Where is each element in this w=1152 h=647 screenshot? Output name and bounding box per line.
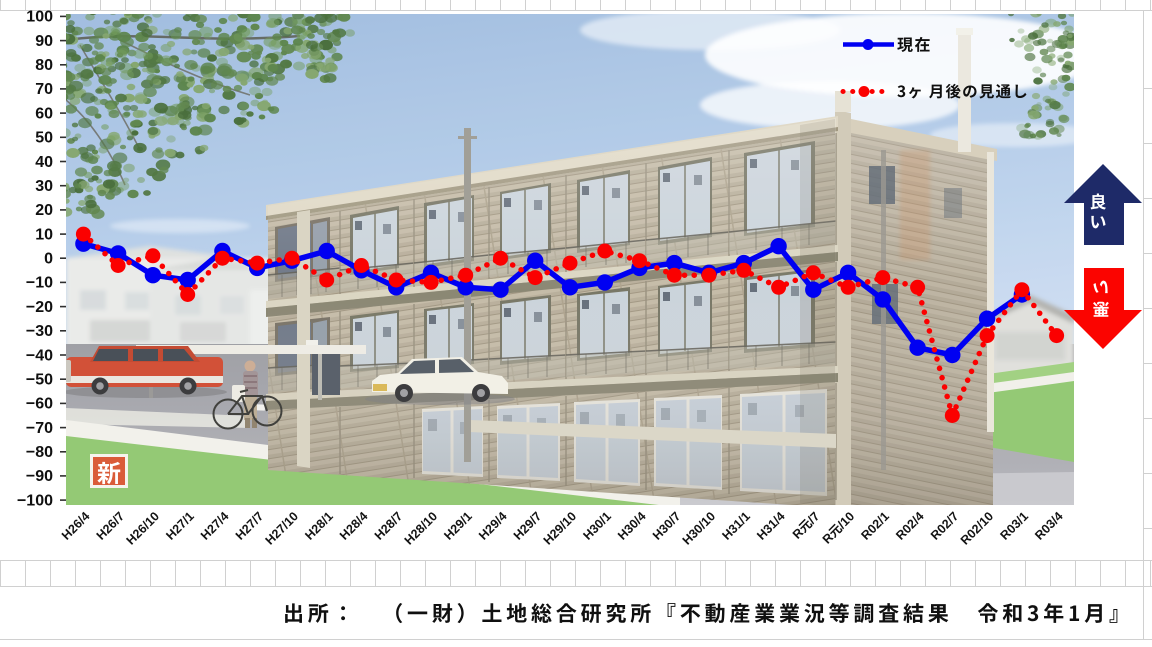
svg-text:R02/7: R02/7 [928,509,962,543]
svg-text:−100: −100 [17,492,53,509]
svg-text:R02/4: R02/4 [893,509,927,543]
svg-text:10: 10 [35,226,53,243]
svg-text:H29/4: H29/4 [476,509,510,543]
svg-text:H28/1: H28/1 [302,509,336,543]
svg-text:−80: −80 [26,444,53,461]
svg-text:H28/10: H28/10 [402,509,440,547]
svg-text:H29/7: H29/7 [511,509,545,543]
svg-text:H28/4: H28/4 [337,509,371,543]
svg-text:−90: −90 [26,468,53,485]
svg-text:H27/10: H27/10 [263,509,301,547]
svg-text:H26/4: H26/4 [59,509,93,543]
svg-text:50: 50 [35,130,53,147]
svg-text:H27/1: H27/1 [163,509,197,543]
svg-text:−40: −40 [26,347,53,364]
svg-text:H26/7: H26/7 [94,509,128,543]
svg-text:R02/10: R02/10 [958,509,996,547]
svg-text:80: 80 [35,57,53,74]
svg-text:−20: −20 [26,299,53,316]
svg-text:H31/1: H31/1 [719,509,753,543]
svg-text:H30/4: H30/4 [615,509,649,543]
svg-text:−30: −30 [26,323,53,340]
svg-text:H30/1: H30/1 [580,509,614,543]
svg-text:H29/10: H29/10 [541,509,579,547]
svg-text:H31/4: H31/4 [754,509,788,543]
svg-text:H27/4: H27/4 [198,509,232,543]
svg-text:70: 70 [35,81,53,98]
svg-text:H26/10: H26/10 [124,509,162,547]
svg-text:−60: −60 [26,396,53,413]
svg-text:H28/7: H28/7 [372,509,406,543]
svg-text:H29/1: H29/1 [441,509,475,543]
svg-text:60: 60 [35,105,53,122]
svg-text:R02/1: R02/1 [858,509,892,543]
svg-text:40: 40 [35,154,53,171]
svg-text:R03/1: R03/1 [998,509,1032,543]
svg-text:90: 90 [35,33,53,50]
svg-text:−50: −50 [26,372,53,389]
svg-text:−10: −10 [26,275,53,292]
svg-text:20: 20 [35,202,53,219]
svg-text:0: 0 [44,251,53,268]
svg-text:−70: −70 [26,420,53,437]
svg-text:H30/10: H30/10 [680,509,718,547]
svg-text:30: 30 [35,178,53,195]
svg-text:R03/4: R03/4 [1032,509,1066,543]
svg-text:100: 100 [26,9,53,26]
